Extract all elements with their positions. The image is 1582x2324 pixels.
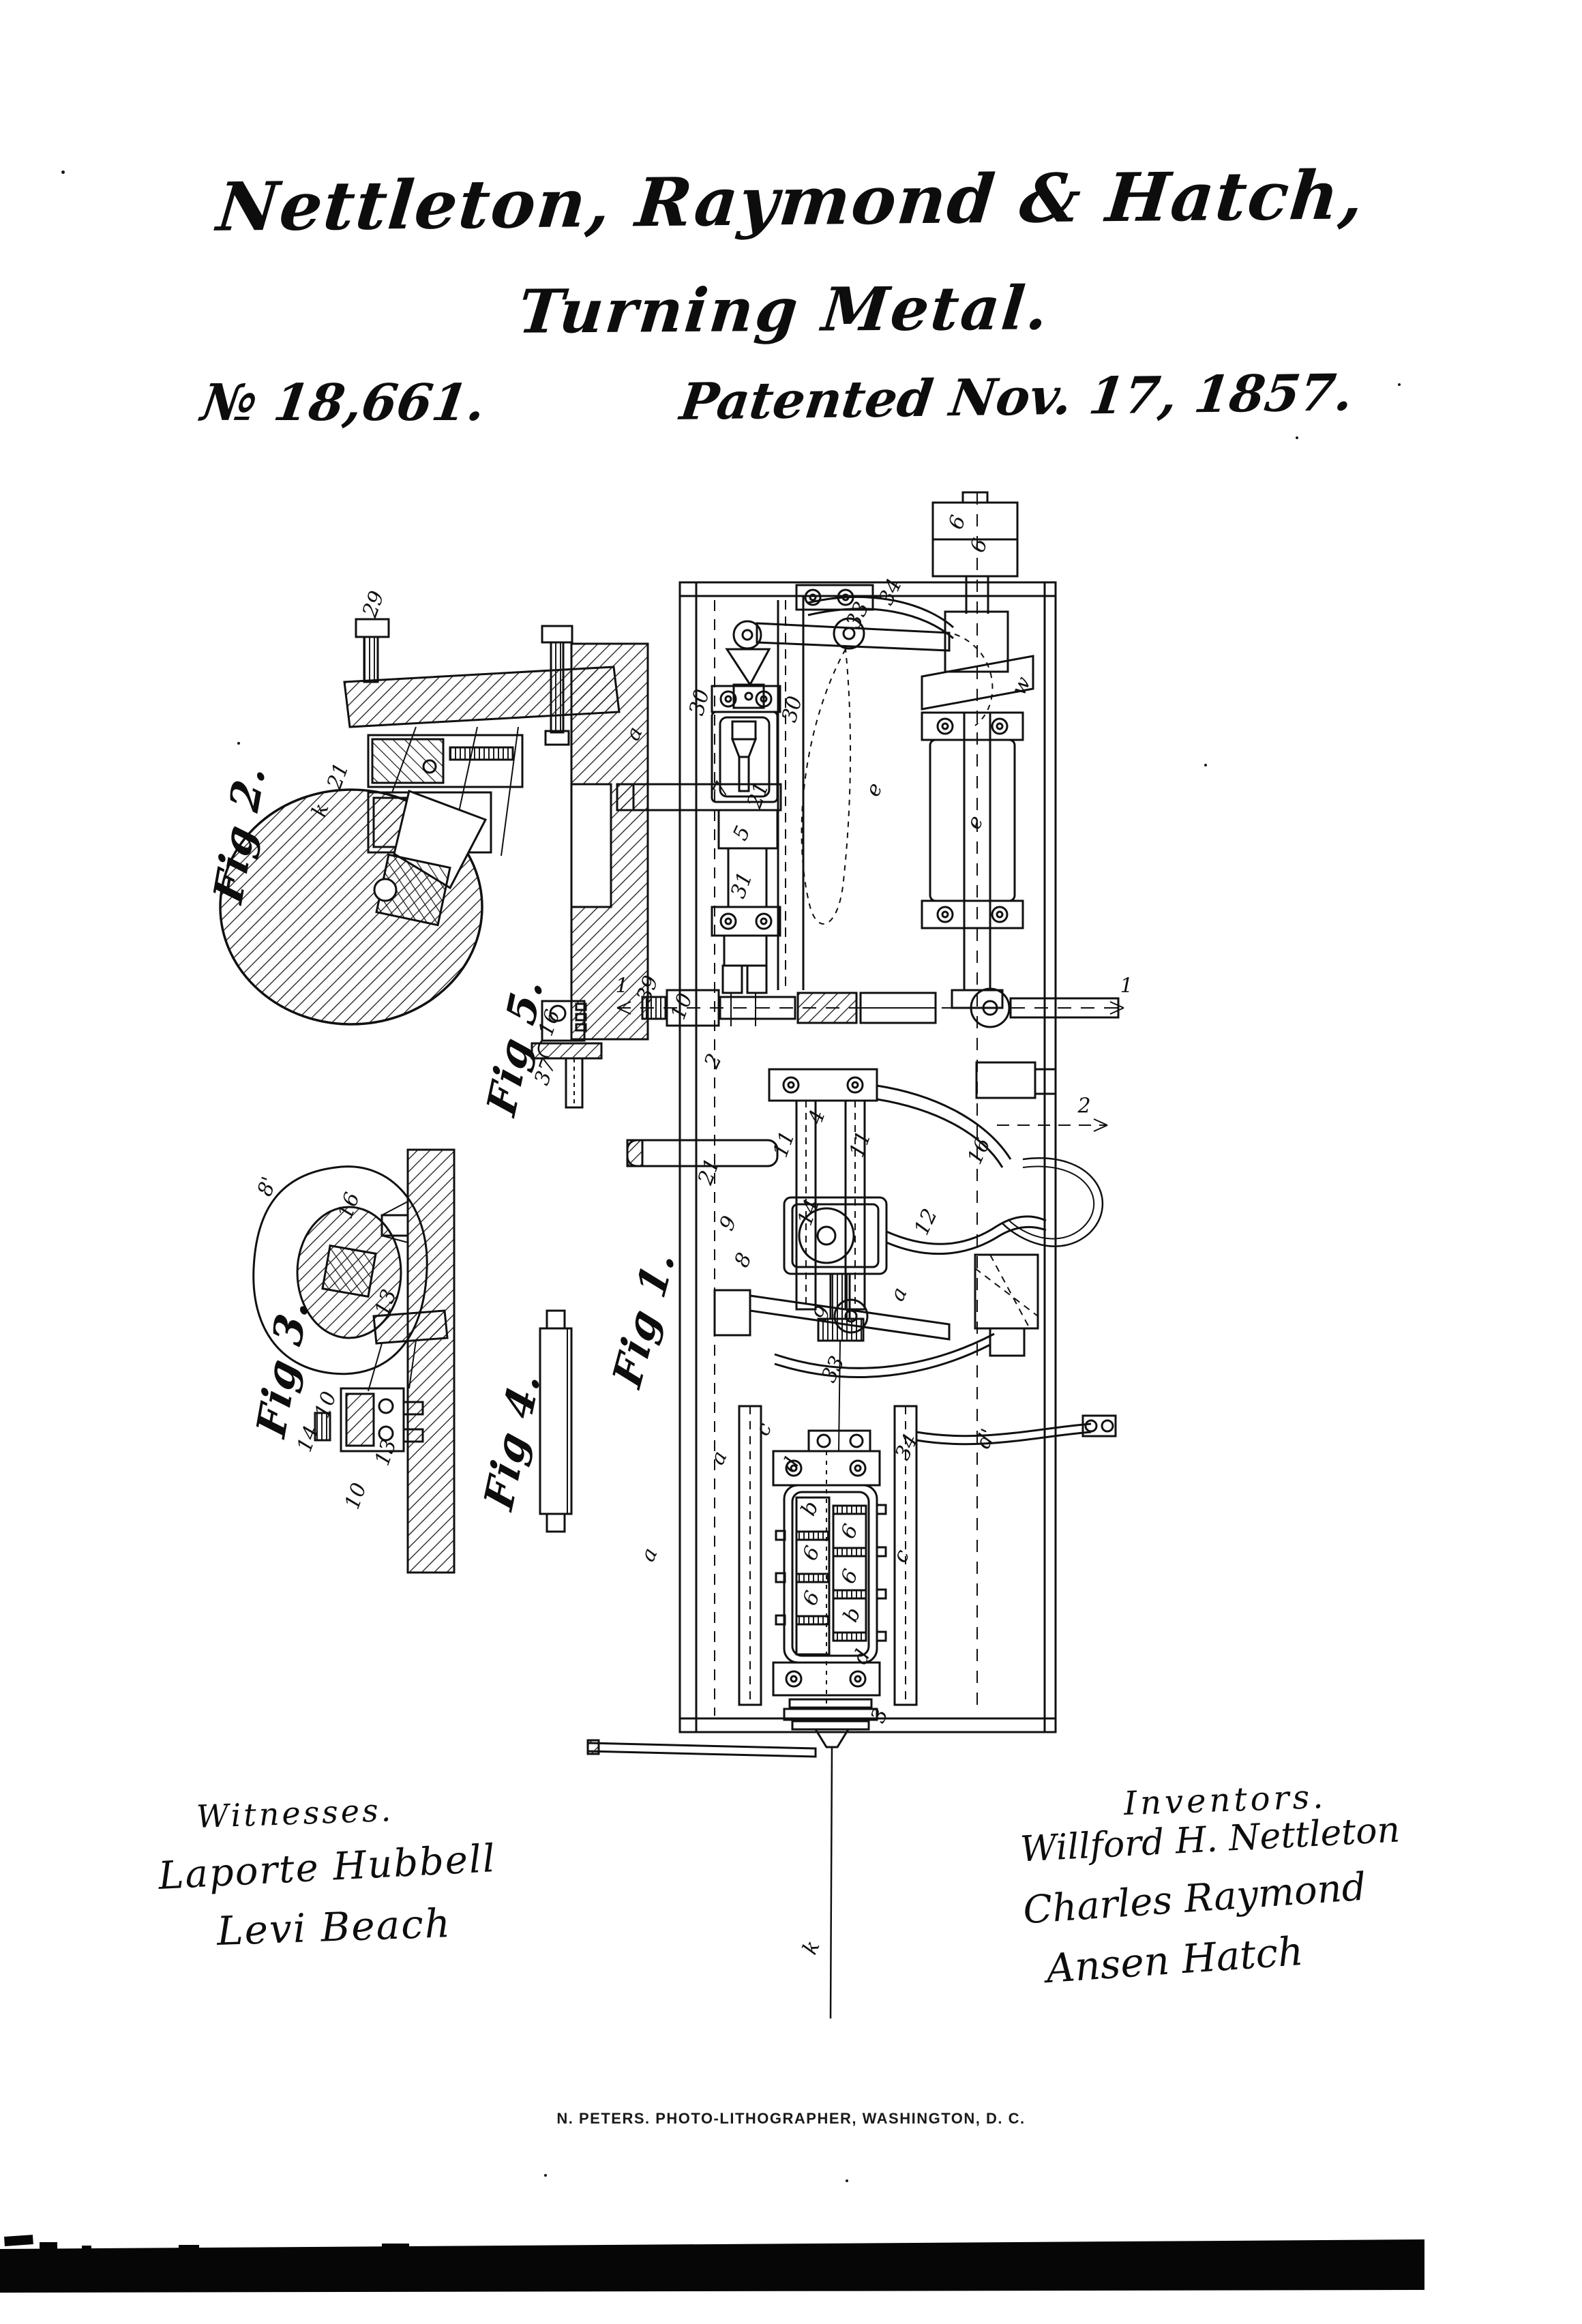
part-label: 33	[817, 1352, 850, 1386]
scan-dot	[1204, 764, 1207, 766]
part-label: 33	[841, 598, 874, 631]
part-label: 9	[809, 1302, 836, 1324]
part-label: 31	[726, 869, 758, 902]
scan-dot	[544, 2174, 547, 2177]
part-label: 34	[874, 575, 907, 608]
scan-dot	[61, 170, 65, 174]
part-label: d	[848, 1646, 876, 1668]
part-label: 12	[910, 1205, 942, 1238]
part-label: e	[961, 812, 988, 833]
part-label: c	[751, 1419, 777, 1440]
part-label: 14	[293, 1422, 324, 1455]
part-label: 13	[370, 1286, 402, 1319]
figure-label: Fig 1.	[604, 1242, 685, 1393]
part-label: w	[1007, 673, 1036, 699]
part-label: 8'	[253, 1174, 282, 1200]
part-label: 1	[1120, 974, 1133, 998]
part-label: c	[889, 1546, 915, 1566]
part-label: 2	[700, 1050, 727, 1072]
scan-dot	[237, 742, 240, 745]
part-label: a	[705, 1447, 732, 1468]
part-label: k	[798, 1937, 824, 1958]
part-label: 34	[891, 1430, 923, 1463]
part-label: a	[885, 1283, 912, 1305]
part-label: 6	[836, 1521, 863, 1543]
part-label: 10	[340, 1480, 372, 1513]
part-label: 21	[743, 779, 774, 811]
part-label: b	[839, 1604, 866, 1626]
part-label: 21	[693, 1155, 725, 1188]
part-label: d	[777, 1454, 805, 1476]
part-label: a	[636, 1544, 662, 1565]
figure-label: Fig 5.	[478, 971, 552, 1121]
scan-dot	[1398, 383, 1401, 386]
part-label: 29	[358, 588, 389, 621]
part-label: 16	[333, 1189, 365, 1222]
part-label: 11	[768, 1128, 800, 1161]
figure-label: Fig 4.	[475, 1365, 550, 1515]
part-label: 13	[370, 1436, 402, 1469]
part-label: 4	[803, 1107, 830, 1127]
patent-page: Nettleton, Raymond & Hatch, Turning Meta…	[0, 0, 1582, 2324]
annotation-layer: Fig 1.Fig 2.Fig 3.Fig 4.Fig 5.663433w303…	[0, 0, 1582, 2324]
part-label: 9	[715, 1212, 742, 1234]
part-label: 10	[666, 990, 698, 1023]
witnesses-heading: Witnesses.	[196, 1791, 394, 1835]
scan-dot	[1296, 436, 1298, 439]
part-label: 8	[730, 1249, 757, 1271]
part-label: 6	[798, 1543, 825, 1564]
part-label: 30	[685, 687, 715, 718]
scan-dot	[1016, 292, 1020, 296]
part-label: e	[861, 779, 887, 801]
scan-dot	[846, 2179, 848, 2182]
witness-signature: Levi Beach	[216, 1900, 452, 1954]
part-label: a	[621, 723, 647, 744]
part-label: 21	[323, 760, 354, 792]
part-label: 1	[615, 974, 628, 998]
part-label: 10	[310, 1388, 342, 1421]
part-label: 2	[1077, 1094, 1090, 1118]
part-label: 6	[836, 1566, 863, 1588]
part-label: 7	[708, 779, 735, 801]
part-label: 5	[728, 822, 756, 844]
part-label: 6	[798, 1588, 825, 1609]
part-label: 11	[845, 1128, 876, 1161]
part-label: 6	[944, 512, 970, 533]
part-label: 3	[866, 1705, 893, 1727]
part-label: 39	[632, 972, 663, 1005]
figure-label: Fig 3.	[248, 1292, 318, 1442]
part-label: 16	[963, 1134, 996, 1167]
figure-label: Fig 2.	[205, 758, 275, 908]
part-label: k	[307, 800, 333, 820]
part-label: b	[796, 1498, 824, 1519]
lithographer-line: N. PETERS. PHOTO-LITHOGRAPHER, WASHINGTO…	[0, 2110, 1582, 2128]
part-label: 14	[793, 1196, 824, 1229]
part-label: d'	[971, 1425, 1000, 1452]
part-label: 30	[777, 694, 807, 725]
part-label: 6	[966, 535, 992, 556]
